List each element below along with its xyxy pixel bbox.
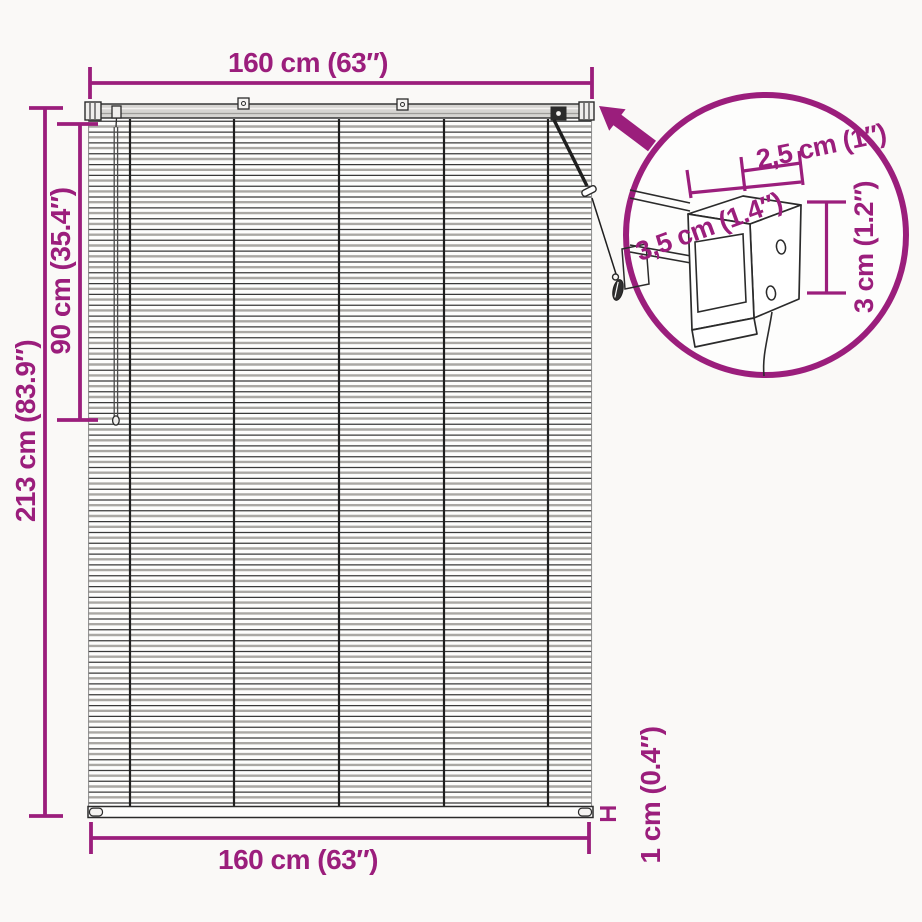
top-width-label: 160 cm (63″) [228,47,388,78]
diagram-stage: 160 cm (63″) 213 cm (83.9″) 90 cm (35.4″… [0,0,922,922]
upper-height-label: 90 cm (35.4″) [45,187,76,354]
total-height-label: 213 cm (83.9″) [10,340,41,522]
bottom-width-label: 160 cm (63″) [218,844,378,875]
blind-dimension-diagram: 160 cm (63″) 213 cm (83.9″) 90 cm (35.4″… [0,0,922,922]
slat-thickness-label: 1 cm (0.4″) [635,726,666,863]
rail-left-end-cap [85,102,101,120]
bottom-rail-right-cap [579,808,592,816]
blind-bottom-rail [88,807,593,818]
rail-mount-bracket-1 [238,98,249,109]
blind-drawing [85,98,625,818]
rail-right-end-cap [579,102,594,120]
bracket-height-label: 3 cm (1.2″) [849,181,879,313]
rail-mount-bracket-2 [397,99,408,110]
cord-lock [551,107,566,120]
bottom-rail-left-cap [90,808,103,816]
